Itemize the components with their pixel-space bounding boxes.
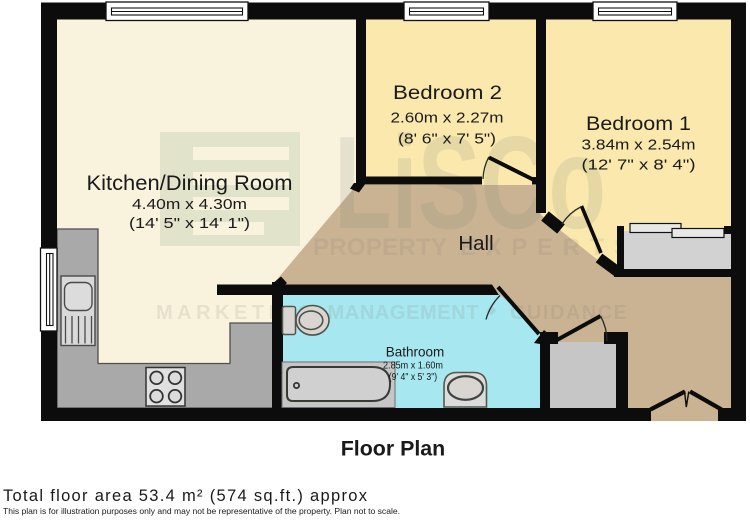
svg-text:Bedroom 1: Bedroom 1 [586, 113, 691, 135]
svg-text:Total floor area 53.4 m² (574: Total floor area 53.4 m² (574 sq.ft.) ap… [3, 487, 368, 505]
svg-text:Kitchen/Dining Room: Kitchen/Dining Room [87, 171, 293, 195]
svg-text:(9' 4" x 5' 3"): (9' 4" x 5' 3") [389, 372, 437, 383]
svg-text:This plan is for illustration: This plan is for illustration purposes o… [3, 506, 400, 516]
svg-text:Bathroom: Bathroom [386, 345, 445, 360]
svg-text:(12' 7" x 8' 4"): (12' 7" x 8' 4") [582, 157, 696, 174]
svg-text:(8' 6" x 7' 5"): (8' 6" x 7' 5") [398, 131, 496, 148]
svg-text:2.60m x 2.27m: 2.60m x 2.27m [391, 110, 504, 127]
svg-text:2.85m x 1.60m: 2.85m x 1.60m [383, 360, 443, 371]
svg-text:Hall: Hall [458, 232, 493, 255]
svg-text:Bedroom 2: Bedroom 2 [393, 82, 502, 104]
svg-text:4.40m x 4.30m: 4.40m x 4.30m [132, 196, 247, 213]
svg-text:MANAGEMENT: MANAGEMENT [328, 302, 479, 324]
svg-text:(14' 5" x 14' 1"): (14' 5" x 14' 1") [129, 215, 250, 232]
svg-text:Floor Plan: Floor Plan [341, 437, 446, 461]
svg-text:PROPERTY: PROPERTY [313, 234, 447, 261]
svg-text:3.84m x 2.54m: 3.84m x 2.54m [582, 137, 696, 154]
